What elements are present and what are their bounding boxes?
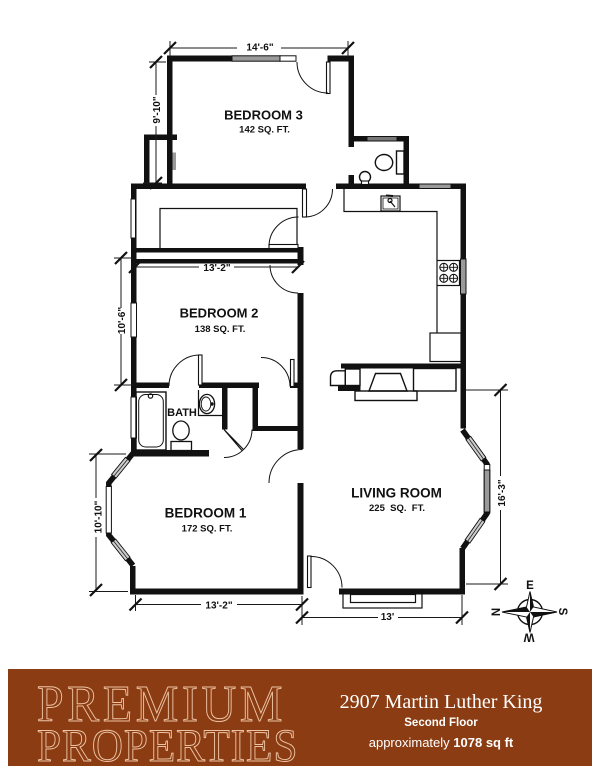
svg-text:10'-6": 10'-6" (117, 307, 128, 334)
svg-text:BEDROOM 3: BEDROOM 3 (224, 108, 303, 123)
svg-text:16'-3": 16'-3" (497, 479, 508, 506)
svg-text:S: S (556, 608, 568, 616)
svg-text:BATH: BATH (167, 407, 197, 419)
svg-text:LIVING ROOM: LIVING ROOM (351, 486, 442, 501)
svg-text:172 SQ. FT.: 172 SQ. FT. (182, 524, 233, 535)
svg-text:BEDROOM 1: BEDROOM 1 (165, 506, 247, 521)
svg-text:13'-2": 13'-2" (205, 601, 232, 612)
svg-text:142 SQ. FT.: 142 SQ. FT. (239, 125, 290, 136)
svg-text:BEDROOM 2: BEDROOM 2 (180, 306, 259, 321)
svg-text:13': 13' (381, 612, 395, 623)
svg-text:14'-6": 14'-6" (246, 43, 273, 54)
svg-text:9'-10": 9'-10" (152, 96, 163, 123)
svg-text:225 SQ. FT.: 225 SQ. FT. (369, 503, 425, 514)
svg-text:13'-2": 13'-2" (203, 263, 230, 274)
svg-text:W: W (523, 631, 534, 643)
svg-text:10'-10": 10'-10" (94, 500, 105, 533)
svg-text:E: E (526, 580, 534, 592)
svg-text:N: N (491, 608, 503, 616)
svg-text:138 SQ. FT.: 138 SQ. FT. (195, 324, 246, 335)
